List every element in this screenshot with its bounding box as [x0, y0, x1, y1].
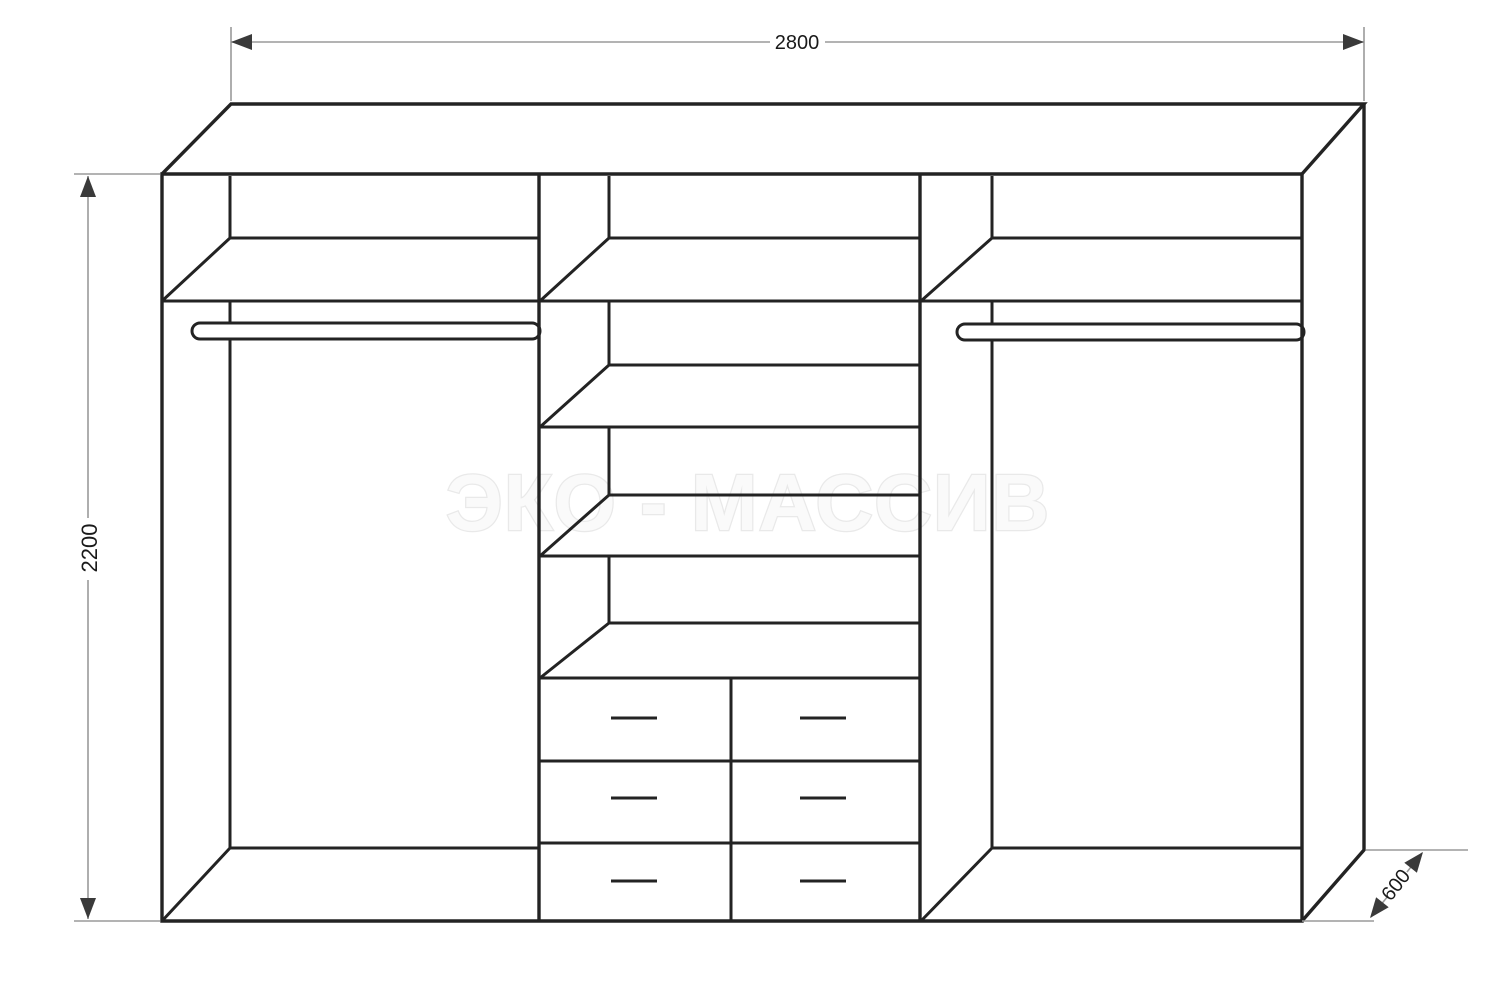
wardrobe-drawing-page: ЭКО - МАССИВ 2 [0, 0, 1500, 1000]
left-section-floor [162, 848, 539, 921]
arrow-left-icon [231, 34, 252, 50]
right-hanging-rod [957, 324, 1304, 340]
drawer-handles [611, 718, 846, 881]
middle-shelf-4 [539, 623, 920, 678]
wardrobe-drawing: ЭКО - МАССИВ 2 [0, 0, 1500, 1000]
arrow-up-icon [80, 176, 96, 197]
drawer-grid [539, 678, 920, 921]
middle-shelf-1 [540, 238, 920, 301]
arrow-depth-far-icon [1404, 852, 1423, 873]
top-face [162, 104, 1364, 174]
dimension-height-value: 2200 [77, 524, 102, 573]
middle-shelf-2 [539, 365, 920, 427]
arrow-depth-near-icon [1370, 897, 1389, 918]
wardrobe-interior [162, 176, 1302, 921]
right-section-floor [921, 848, 1302, 921]
dimension-width-value: 2800 [775, 32, 820, 54]
left-section-top-shelf [162, 238, 539, 301]
dimension-depth: 600 [1302, 850, 1468, 921]
left-hanging-rod [192, 323, 540, 339]
dimension-height: 2200 [74, 174, 160, 921]
arrow-right-icon [1343, 34, 1364, 50]
right-side-face [1302, 104, 1364, 921]
arrow-down-icon [80, 898, 96, 919]
right-section-top-shelf [921, 238, 1302, 301]
dimension-depth-value: 600 [1377, 865, 1415, 905]
watermark-text: ЭКО - МАССИВ [446, 458, 1050, 547]
dimension-width: 2800 [231, 27, 1364, 101]
